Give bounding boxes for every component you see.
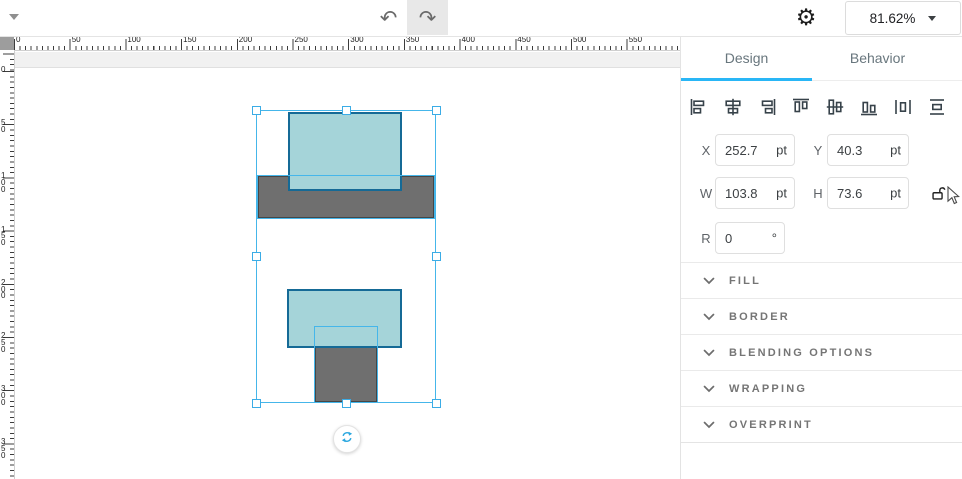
selection-handle-sw[interactable] bbox=[252, 399, 261, 408]
ruler-label: 0 bbox=[1, 67, 8, 74]
rotate-handle[interactable] bbox=[333, 425, 361, 453]
selection-handle-ne[interactable] bbox=[432, 106, 441, 115]
vertical-ruler[interactable]: 050100150200250300350 bbox=[0, 36, 15, 479]
ruler-label: 50 bbox=[72, 36, 81, 44]
distribute-horizontal-icon[interactable] bbox=[893, 96, 913, 118]
settings-gear-icon[interactable]: ⚙ bbox=[791, 3, 821, 33]
collapse-menu-arrow-icon[interactable] bbox=[9, 14, 19, 20]
chevron-down-icon bbox=[928, 16, 936, 21]
x-label: X bbox=[697, 143, 715, 158]
align-center-horizontal-icon[interactable] bbox=[723, 96, 743, 118]
width-field: pt bbox=[715, 177, 795, 209]
x-unit: pt bbox=[776, 143, 787, 158]
ruler-label: 150 bbox=[1, 227, 8, 247]
align-left-icon[interactable] bbox=[689, 96, 709, 118]
ruler-label: 100 bbox=[127, 36, 140, 44]
align-bottom-icon[interactable] bbox=[859, 96, 879, 118]
chevron-down-icon bbox=[703, 349, 715, 357]
panel-tabs: Design Behavior bbox=[681, 36, 962, 81]
selection-handle-e[interactable] bbox=[432, 252, 441, 261]
align-middle-vertical-icon[interactable] bbox=[825, 96, 845, 118]
tab-behavior[interactable]: Behavior bbox=[812, 36, 943, 80]
ruler-label: 0 bbox=[16, 36, 20, 44]
property-sections: FILL BORDER BLENDING OPTIONS WRAPPING OV… bbox=[681, 262, 962, 443]
canvas-page[interactable] bbox=[0, 0, 680, 479]
width-label: W bbox=[697, 186, 715, 201]
ruler-label: 400 bbox=[462, 36, 475, 44]
position-row: X pt Y pt bbox=[681, 134, 962, 166]
section-label: WRAPPING bbox=[729, 383, 807, 395]
ruler-label: 350 bbox=[1, 439, 8, 459]
ruler-label: 100 bbox=[1, 173, 8, 193]
section-label: OVERPRINT bbox=[729, 419, 813, 431]
height-unit: pt bbox=[890, 186, 901, 201]
ruler-label: 250 bbox=[295, 36, 308, 44]
width-unit: pt bbox=[776, 186, 787, 201]
section-label: FILL bbox=[729, 275, 761, 287]
align-top-icon[interactable] bbox=[791, 96, 811, 118]
redo-button[interactable]: ↷ bbox=[407, 0, 448, 35]
size-row: W pt H pt bbox=[681, 177, 962, 209]
tab-design[interactable]: Design bbox=[681, 36, 812, 80]
chevron-down-icon bbox=[703, 313, 715, 321]
ruler-ticks bbox=[3, 36, 14, 479]
section-overprint[interactable]: OVERPRINT bbox=[681, 406, 962, 443]
y-position-field: pt bbox=[827, 134, 909, 166]
top-toolbar: ↶ ↷ ⚙ 81.62% bbox=[0, 0, 962, 37]
rotate-icon bbox=[339, 429, 355, 450]
rotation-row: R ° bbox=[681, 222, 962, 254]
properties-panel: Design Behavior X bbox=[680, 36, 962, 479]
design-app-window: 050100150200250300350400450500550600 050… bbox=[0, 0, 962, 479]
ruler-label: 300 bbox=[350, 36, 363, 44]
section-border[interactable]: BORDER bbox=[681, 298, 962, 334]
chevron-down-icon bbox=[703, 277, 715, 285]
aspect-lock-open-icon[interactable] bbox=[931, 186, 946, 201]
rotation-label: R bbox=[697, 231, 715, 246]
section-label: BLENDING OPTIONS bbox=[729, 347, 874, 359]
ruler-label: 200 bbox=[239, 36, 252, 44]
align-right-icon[interactable] bbox=[757, 96, 777, 118]
ruler-label: 450 bbox=[517, 36, 530, 44]
ruler-label: 150 bbox=[183, 36, 196, 44]
section-blending-options[interactable]: BLENDING OPTIONS bbox=[681, 334, 962, 370]
y-label: Y bbox=[809, 143, 827, 158]
horizontal-ruler[interactable]: 050100150200250300350400450500550600 bbox=[14, 36, 680, 51]
selection-handle-se[interactable] bbox=[432, 399, 441, 408]
ruler-label: 300 bbox=[1, 386, 8, 406]
ruler-label: 250 bbox=[1, 333, 8, 353]
chevron-down-icon bbox=[703, 421, 715, 429]
selection-bounding-box[interactable] bbox=[256, 110, 436, 403]
ruler-label: 550 bbox=[629, 36, 642, 44]
selection-handle-w[interactable] bbox=[252, 252, 261, 261]
y-unit: pt bbox=[890, 143, 901, 158]
distribute-vertical-icon[interactable] bbox=[927, 96, 947, 118]
section-wrapping[interactable]: WRAPPING bbox=[681, 370, 962, 406]
active-tab-indicator bbox=[681, 78, 812, 81]
chevron-down-icon bbox=[703, 385, 715, 393]
selection-handle-s[interactable] bbox=[342, 399, 351, 408]
section-label: BORDER bbox=[729, 311, 790, 323]
selection-handle-nw[interactable] bbox=[252, 106, 261, 115]
zoom-level-value: 81.62% bbox=[870, 11, 916, 26]
selection-handle-n[interactable] bbox=[342, 106, 351, 115]
undo-button[interactable]: ↶ bbox=[370, 0, 407, 35]
rotation-field: ° bbox=[715, 222, 785, 254]
ruler-label: 500 bbox=[573, 36, 586, 44]
zoom-level-dropdown[interactable]: 81.62% bbox=[845, 1, 961, 35]
ruler-label: 350 bbox=[406, 36, 419, 44]
x-position-field: pt bbox=[715, 134, 795, 166]
height-field: pt bbox=[827, 177, 909, 209]
alignment-toolbar bbox=[689, 96, 947, 118]
ruler-label: 200 bbox=[1, 280, 8, 300]
ruler-label: 50 bbox=[1, 120, 8, 134]
rotation-unit: ° bbox=[772, 231, 777, 246]
section-fill[interactable]: FILL bbox=[681, 262, 962, 298]
ruler-origin-corner bbox=[0, 36, 14, 50]
height-label: H bbox=[809, 186, 827, 201]
